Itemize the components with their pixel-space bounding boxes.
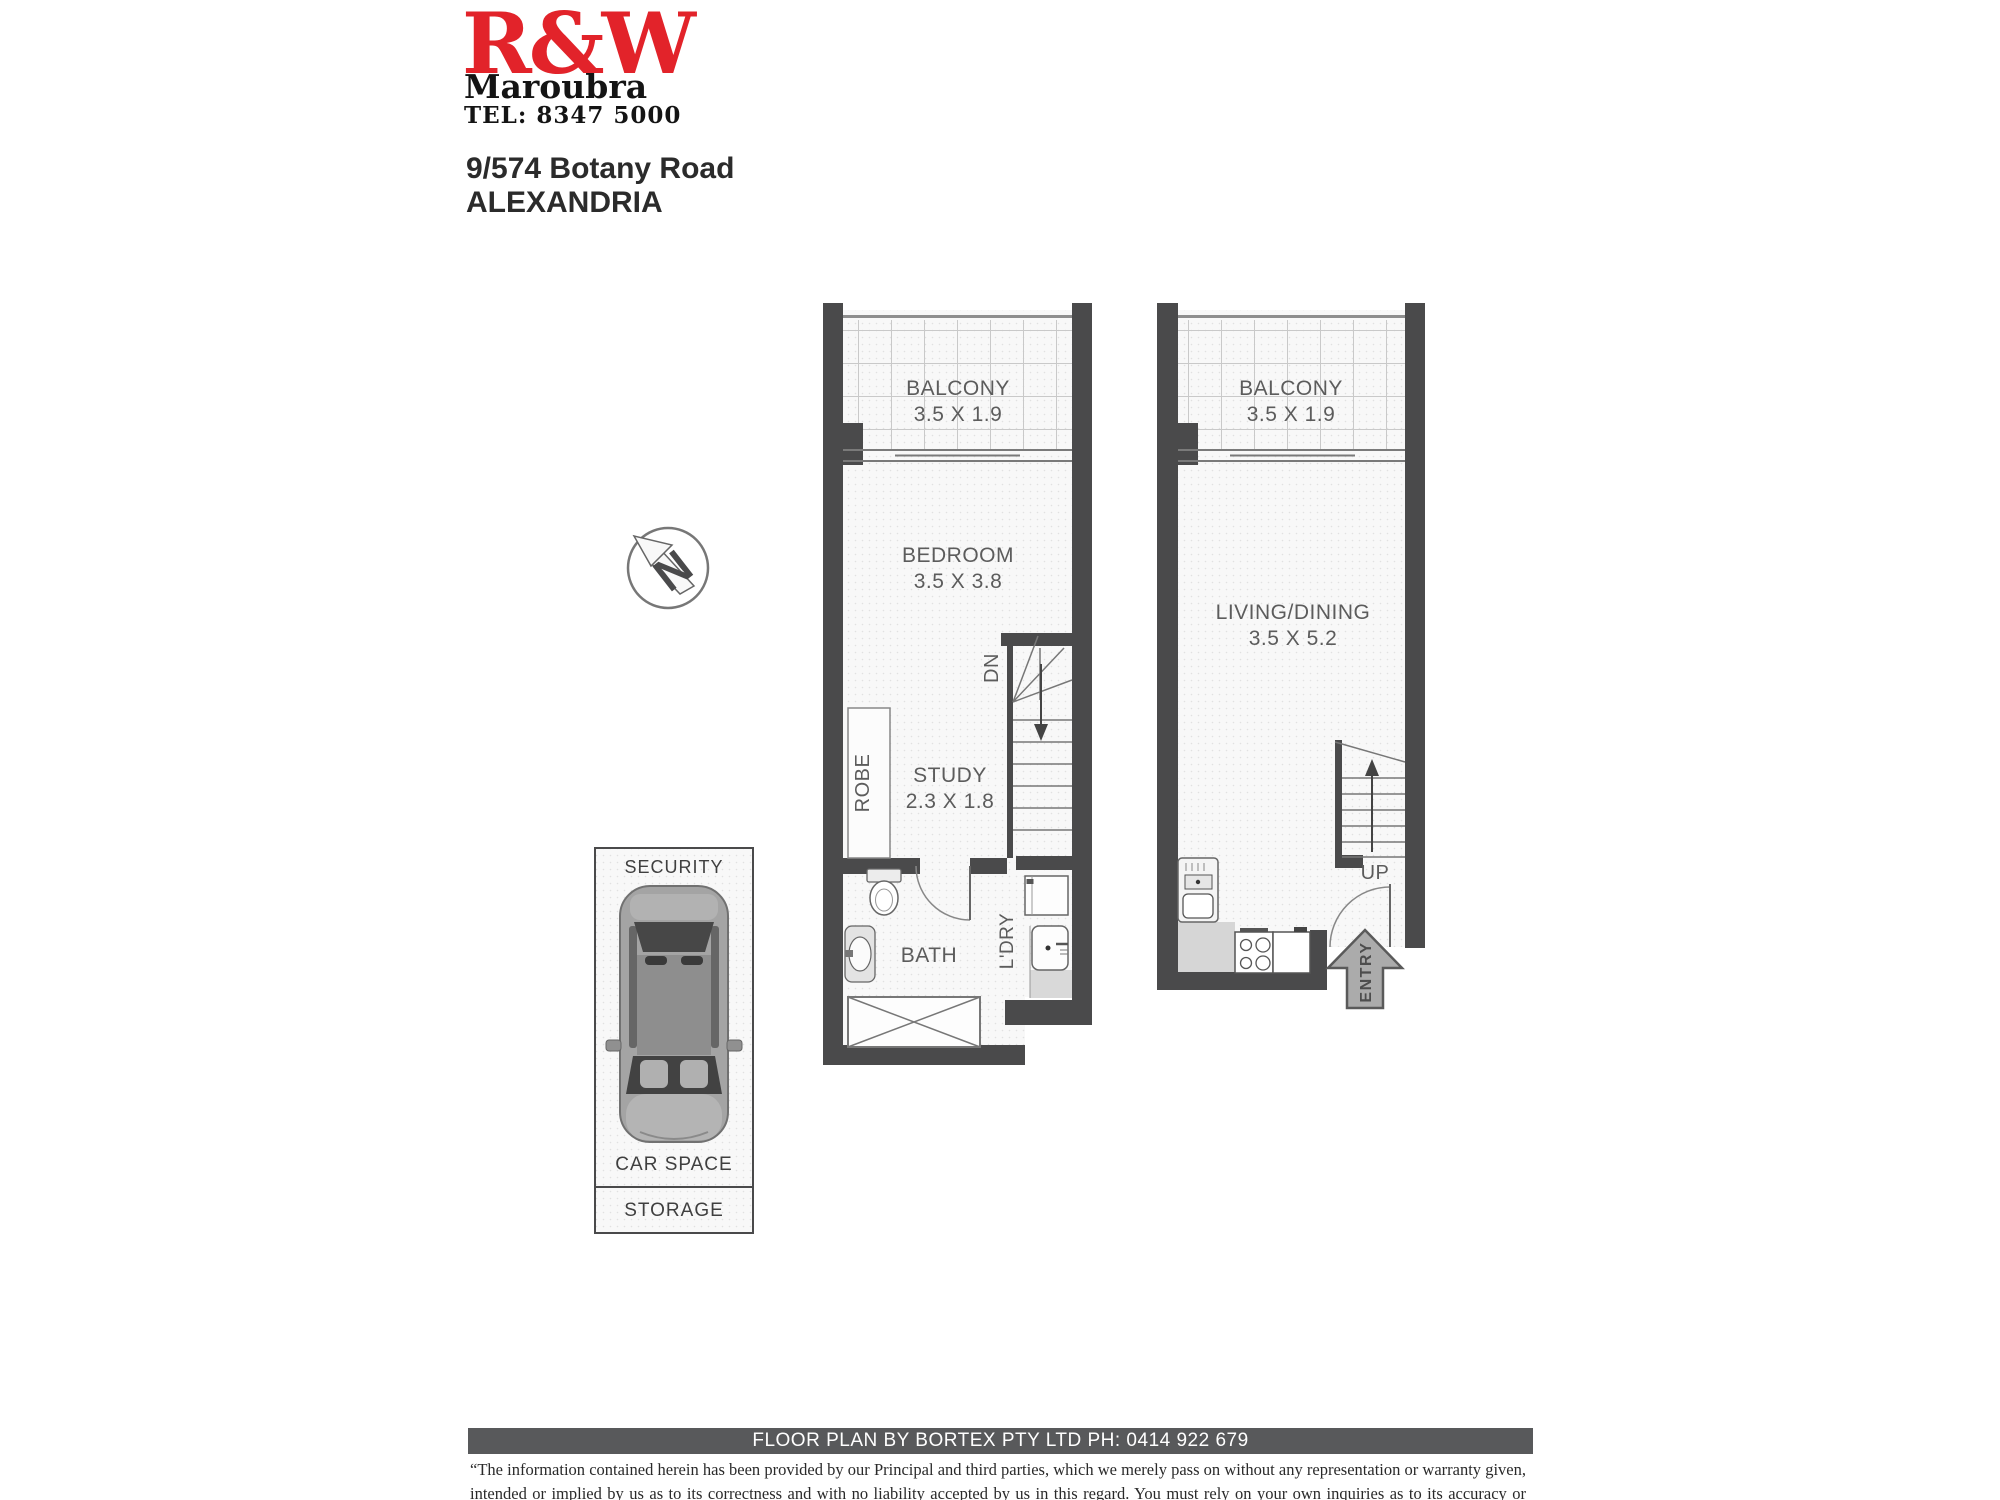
- robe-label: ROBE: [852, 754, 874, 813]
- stairs-up-label: UP: [1361, 862, 1390, 884]
- bathtub: [848, 997, 980, 1047]
- balcony1-dims: 3.5 X 1.9: [914, 403, 1003, 426]
- floorplan-canvas: BALCONY 3.5 X 1.9 BEDROOM 3.5 X 3.8 STUD…: [0, 0, 2000, 1500]
- bath-label: BATH: [901, 944, 957, 967]
- study-dims: 2.3 X 1.8: [906, 790, 995, 813]
- security-label: SECURITY: [624, 857, 723, 877]
- bedroom-label: BEDROOM: [902, 544, 1014, 567]
- stairs-dn-label: DN: [981, 653, 1003, 683]
- entry-label: ENTRY: [1358, 941, 1375, 1002]
- toilet: [867, 869, 901, 915]
- car-icon: [606, 886, 742, 1142]
- bath-basin: [845, 926, 875, 982]
- bedroom-dims: 3.5 X 3.8: [914, 570, 1003, 593]
- floorplan-credit-bar: FLOOR PLAN BY BORTEX PTY LTD PH: 0414 92…: [468, 1428, 1533, 1454]
- north-compass: N: [628, 528, 708, 608]
- laundry-fixtures: [1025, 876, 1072, 998]
- level1-balcony-railing: [843, 315, 1072, 318]
- storage-label: STORAGE: [624, 1200, 724, 1221]
- balcony2-dims: 3.5 X 1.9: [1247, 403, 1336, 426]
- car-space-block: SECURITY CAR SPACE STORAGE: [595, 848, 753, 1233]
- living-dining-dims: 3.5 X 5.2: [1249, 627, 1338, 650]
- level1-plan: BALCONY 3.5 X 1.9 BEDROOM 3.5 X 3.8 STUD…: [823, 303, 1092, 1065]
- level2-plan: ENTRY BALCONY 3.5 X 1.9 LIVING/DINING 3.…: [1157, 303, 1425, 1008]
- disclaimer-text: “The information contained herein has be…: [470, 1458, 1526, 1500]
- balcony1-label: BALCONY: [906, 377, 1010, 400]
- floorplan-page: R&W Maroubra TEL: 8347 5000 9/574 Botany…: [0, 0, 2000, 1500]
- balcony2-label: BALCONY: [1239, 377, 1343, 400]
- study-label: STUDY: [913, 764, 987, 787]
- living-dining-label: LIVING/DINING: [1216, 601, 1371, 624]
- level2-balcony-railing: [1178, 315, 1405, 318]
- laundry-label: L'DRY: [997, 913, 1018, 969]
- car-space-label: CAR SPACE: [615, 1154, 732, 1175]
